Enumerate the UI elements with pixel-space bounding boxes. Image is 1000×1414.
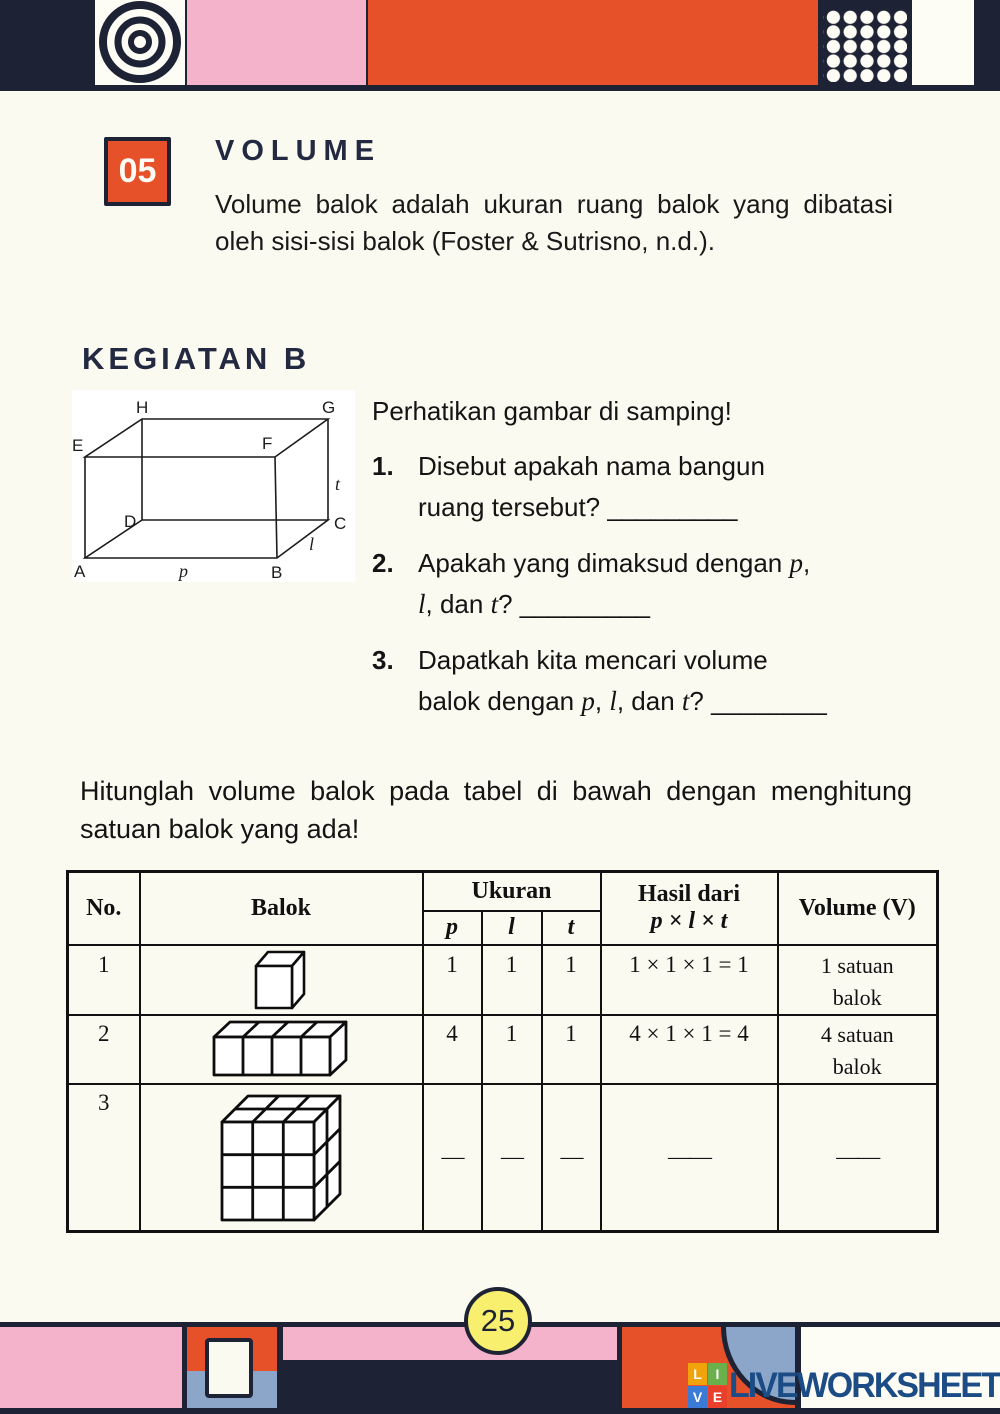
header-hasil-line2: p × l × t	[606, 908, 773, 935]
row1-unit-cube-figure	[140, 945, 423, 1015]
top-banner	[0, 0, 1000, 91]
row2-volume-line1: 4 satuan	[783, 1019, 933, 1051]
header-p: p	[423, 911, 482, 945]
concentric-circles-decoration	[95, 0, 185, 85]
question-2-segment: Apakah yang dimaksud dengan	[418, 548, 790, 578]
question-3-line1: Dapatkah kita mencari volume	[418, 645, 768, 675]
header-t: t	[542, 911, 601, 945]
header-hasil-line1: Hasil dari	[606, 881, 773, 908]
question-1-line2-blank[interactable]: ruang tersebut? _________	[418, 492, 738, 522]
question-3-blank[interactable]: ? ________	[689, 686, 826, 716]
row1-no: 1	[68, 945, 140, 1015]
volume-table: No. Balok Ukuran Hasil dari p × l × t Vo…	[66, 870, 939, 1233]
row3-volume-blank[interactable]: ——	[778, 1084, 938, 1232]
logo-square-i: I	[708, 1363, 727, 1385]
row3-l-blank[interactable]: —	[482, 1084, 542, 1232]
header-l: l	[482, 911, 542, 945]
row2-volume: 4 satuan balok	[778, 1015, 938, 1084]
dots-grid-decoration	[823, 10, 907, 82]
header-volume: Volume (V)	[778, 872, 938, 945]
question-3-segment: ,	[595, 686, 609, 716]
orange-block-decoration	[368, 0, 818, 85]
lesson-number: 05	[119, 152, 157, 191]
question-1-line1: Disebut apakah nama bangun	[418, 451, 765, 481]
header-no: No.	[68, 872, 140, 945]
question-2: 2. Apakah yang dimaksud dengan p, l, dan…	[372, 543, 937, 625]
concentric-circles-icon	[95, 0, 185, 85]
vertex-label-b: B	[271, 563, 282, 582]
table-row: 2	[68, 1015, 938, 1084]
question-3-number: 3.	[372, 640, 418, 722]
row3-p-blank[interactable]: —	[423, 1084, 482, 1232]
row2-l: 1	[482, 1015, 542, 1084]
vertex-label-f: F	[262, 434, 272, 453]
white-block-decoration	[912, 0, 974, 85]
pink-block-decoration	[187, 0, 366, 85]
header-ukuran: Ukuran	[423, 872, 601, 911]
question-2-number: 2.	[372, 543, 418, 625]
row1-volume-line1: 1 satuan	[783, 950, 933, 982]
row1-volume-line2: balok	[783, 982, 933, 1014]
row1-t: 1	[542, 945, 601, 1015]
vertex-label-h: H	[136, 398, 148, 417]
worksheet-page: 05 VOLUME Volume balok adalah ukuran rua…	[0, 0, 1000, 1414]
lesson-number-badge: 05	[104, 137, 171, 206]
dim-label-p: p	[177, 561, 188, 581]
logo-square-e: E	[708, 1386, 727, 1408]
pink-strip-decoration	[283, 1327, 617, 1360]
question-2-segment: , dan	[426, 589, 491, 619]
row3-hasil-blank[interactable]: ——	[601, 1084, 778, 1232]
cream-rect-decoration	[205, 1338, 253, 1398]
vertex-label-g: G	[322, 398, 335, 417]
question-2-text[interactable]: Apakah yang dimaksud dengan p, l, dan t?…	[418, 543, 810, 625]
row2-four-cube-figure	[140, 1015, 423, 1084]
question-3-segment: balok dengan	[418, 686, 581, 716]
math-var-p: p	[790, 548, 804, 578]
question-2-blank[interactable]: ? _________	[498, 589, 650, 619]
table-row: 1 1 1 1 1 × 1 × 1 = 1 1 satuan	[68, 945, 938, 1015]
pink-block-decoration	[0, 1327, 182, 1408]
figure-prompt: Perhatikan gambar di samping!	[372, 392, 937, 430]
table-row: 3	[68, 1084, 938, 1232]
question-3: 3. Dapatkah kita mencari volume balok de…	[372, 640, 937, 722]
header-hasil: Hasil dari p × l × t	[601, 872, 778, 945]
row1-hasil: 1 × 1 × 1 = 1	[601, 945, 778, 1015]
cuboid-drawing: H G E F D C A B p l t	[72, 390, 355, 582]
row1-l: 1	[482, 945, 542, 1015]
row2-hasil: 4 × 1 × 1 = 4	[601, 1015, 778, 1084]
logo-square-l: L	[688, 1363, 707, 1385]
math-var-p: p	[581, 686, 595, 716]
lesson-title: VOLUME	[215, 135, 381, 168]
row3-no: 3	[68, 1084, 140, 1232]
row2-p: 4	[423, 1015, 482, 1084]
liveworksheets-logo[interactable]: L I V E LIVEWORKSHEETS	[688, 1363, 1000, 1408]
question-1-number: 1.	[372, 446, 418, 528]
dim-label-t: t	[335, 474, 341, 494]
question-3-segment: , dan	[617, 686, 682, 716]
question-3-text[interactable]: Dapatkah kita mencari volume balok denga…	[418, 640, 827, 722]
cuboid-figure: H G E F D C A B p l t	[72, 390, 355, 582]
row3-cube-block-figure	[140, 1084, 423, 1232]
math-var-l: l	[609, 686, 617, 716]
row2-t: 1	[542, 1015, 601, 1084]
lesson-intro: Volume balok adalah ukuran ruang balok y…	[215, 186, 893, 260]
row1-volume: 1 satuan balok	[778, 945, 938, 1015]
row3-t-blank[interactable]: —	[542, 1084, 601, 1232]
math-var-l: l	[418, 589, 426, 619]
row2-no: 2	[68, 1015, 140, 1084]
row1-p: 1	[423, 945, 482, 1015]
questions-column: Perhatikan gambar di samping! 1. Disebut…	[372, 392, 937, 737]
row2-volume-line2: balok	[783, 1051, 933, 1083]
liveworksheets-logo-icon: L I V E	[688, 1363, 727, 1408]
vertex-label-e: E	[72, 436, 83, 455]
vertex-label-d: D	[124, 512, 136, 531]
page-number-badge: 25	[464, 1287, 532, 1355]
math-var-t: t	[491, 589, 499, 619]
logo-square-v: V	[688, 1386, 707, 1408]
vertex-label-a: A	[74, 562, 86, 581]
dim-label-l: l	[309, 534, 314, 554]
vertex-label-c: C	[334, 514, 346, 533]
activity-title: KEGIATAN B	[82, 341, 310, 377]
header-balok: Balok	[140, 872, 423, 945]
question-1-text[interactable]: Disebut apakah nama bangun ruang tersebu…	[418, 446, 765, 528]
liveworksheets-wordmark: LIVEWORKSHEETS	[729, 1366, 1000, 1406]
page-number: 25	[481, 1303, 515, 1339]
question-1: 1. Disebut apakah nama bangun ruang ters…	[372, 446, 937, 528]
question-2-segment: ,	[803, 548, 810, 578]
table-instruction: Hitunglah volume balok pada tabel di baw…	[80, 772, 912, 848]
